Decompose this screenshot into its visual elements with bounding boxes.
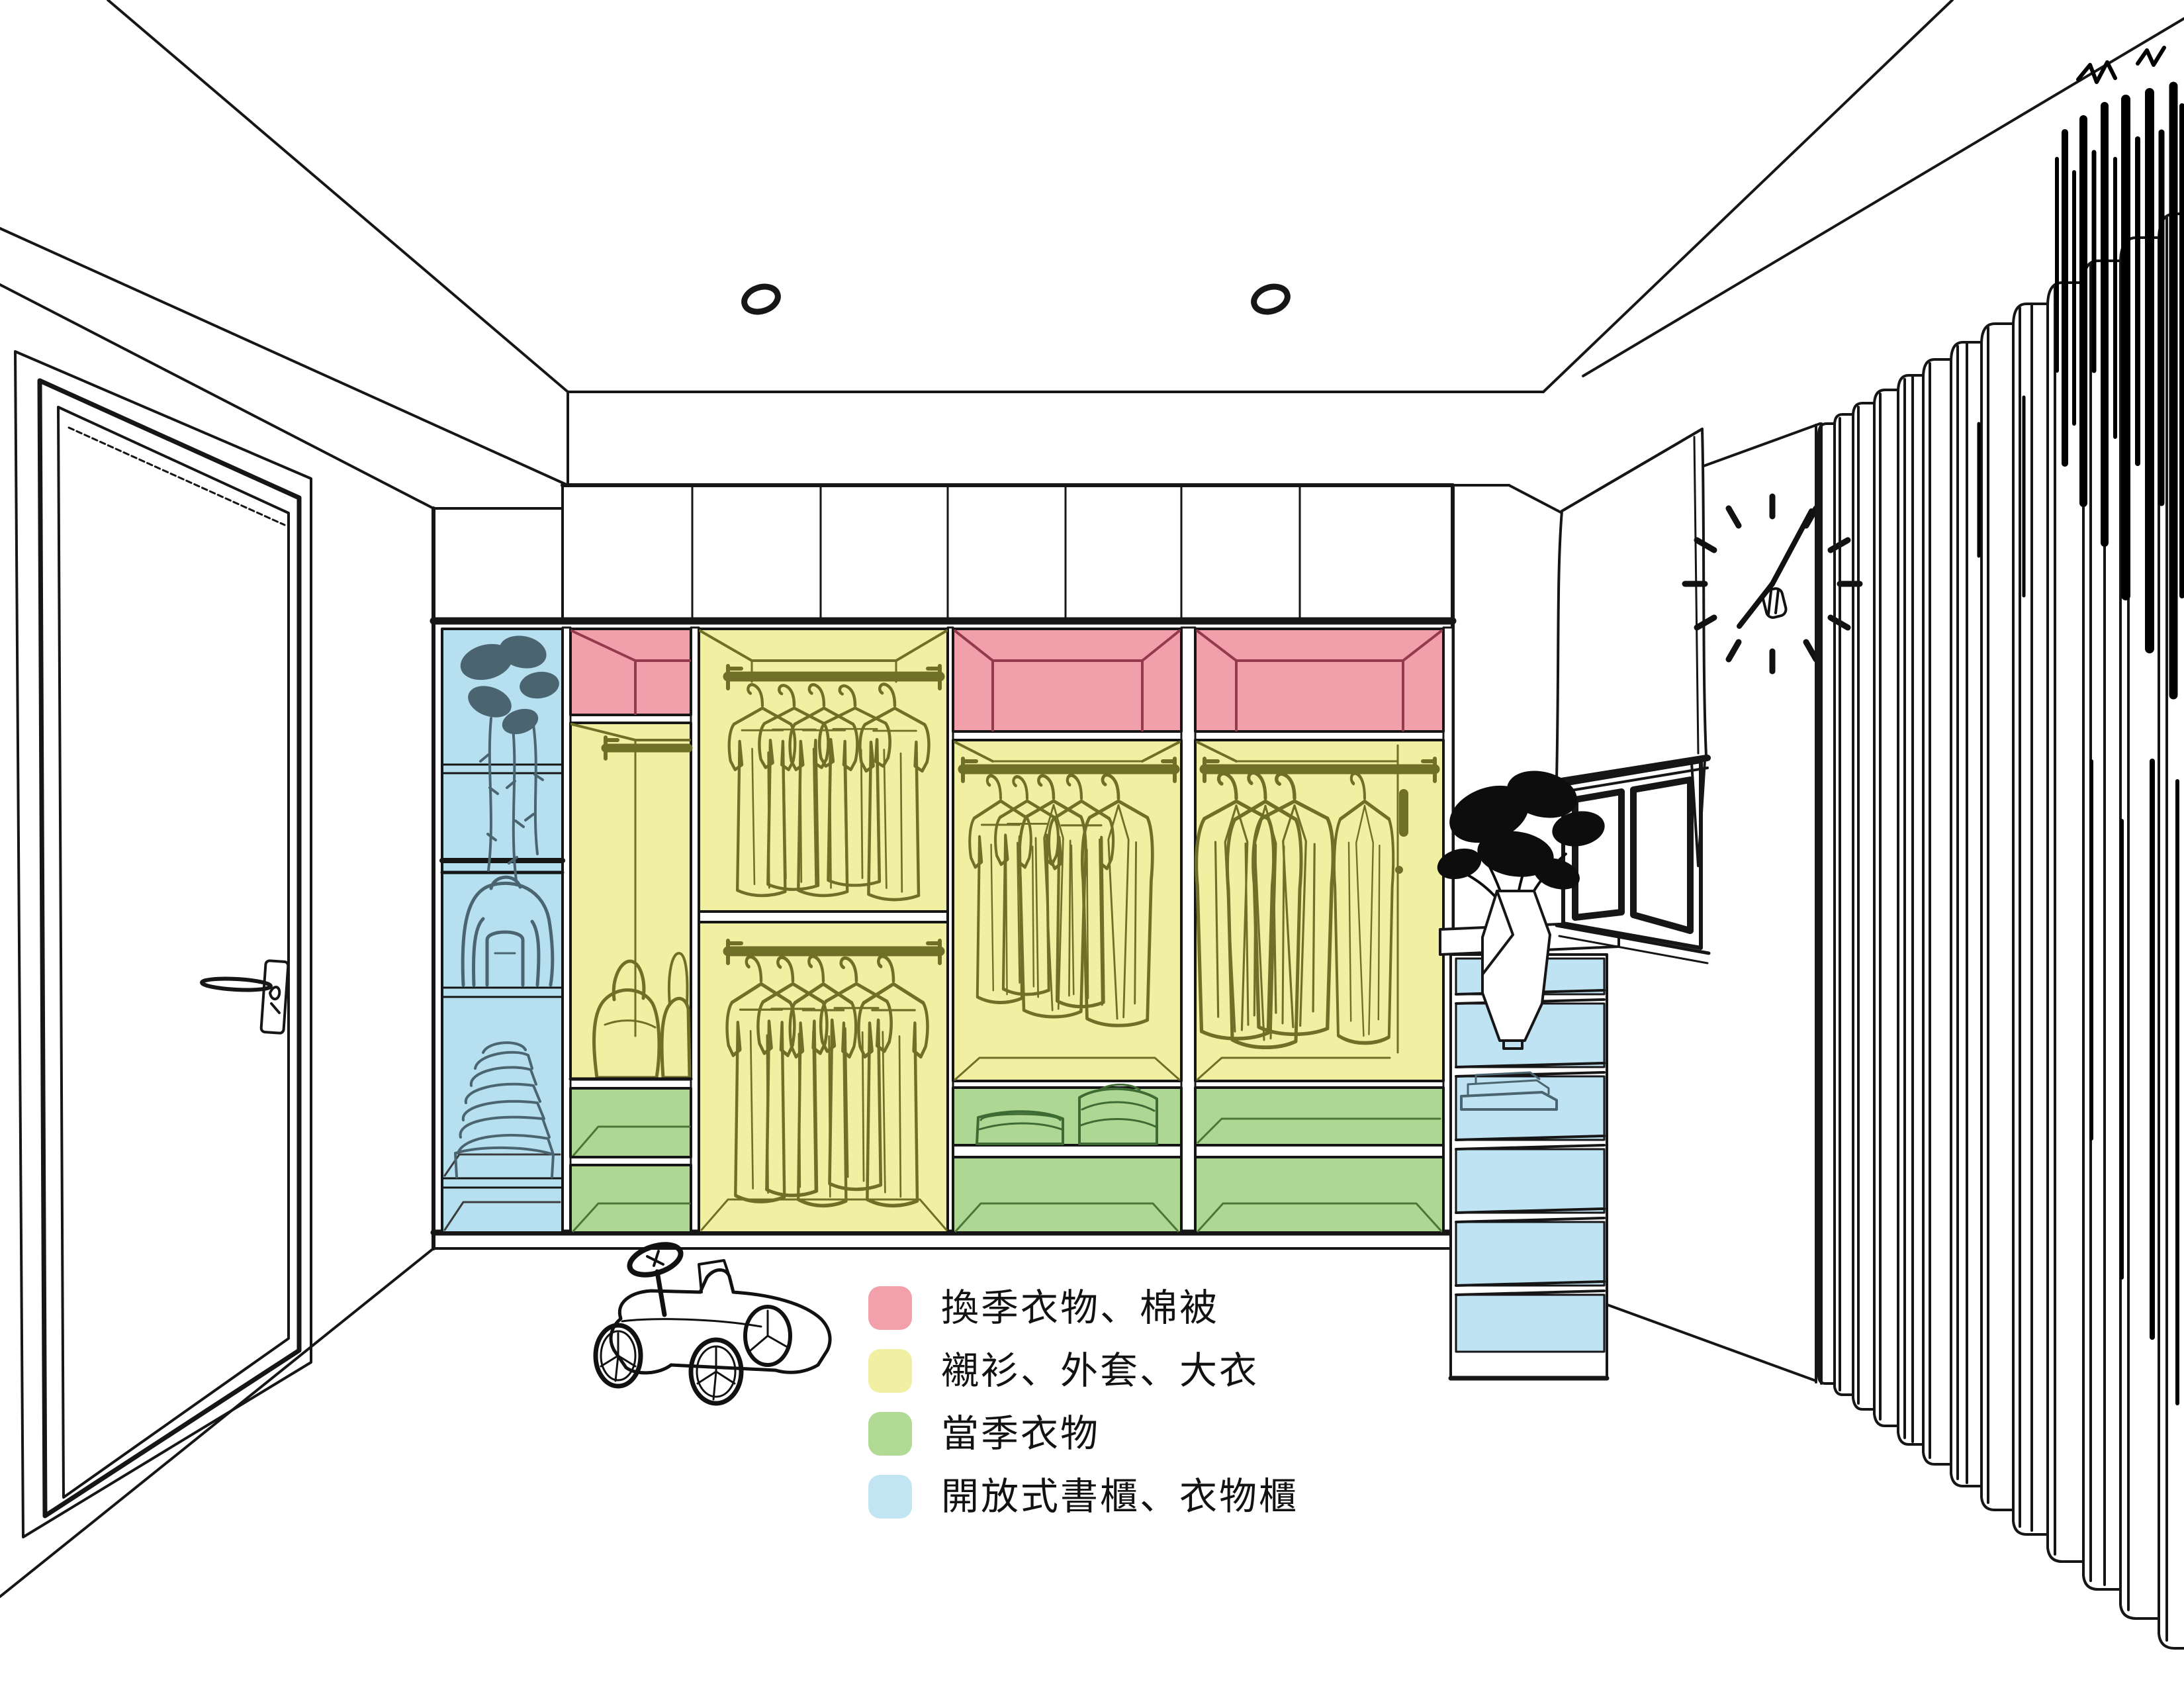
right-ceiling-corner-line [1543, 0, 1952, 392]
green-zone-cell [1195, 1157, 1443, 1233]
yellow-zone [953, 740, 1181, 1081]
wardrobe-top-cabinets [433, 485, 1453, 621]
legend-label: 當季衣物 [941, 1412, 1100, 1456]
mid-shelf [699, 912, 948, 922]
legend-label: 襯衫、外套、大衣 [941, 1349, 1259, 1393]
legend-swatch-blue [868, 1475, 912, 1519]
legend-swatch-green [868, 1412, 912, 1456]
left-wall-crown-line [0, 285, 433, 508]
left-ceiling-corner-line [108, 0, 568, 392]
ceiling-light-icon [1251, 283, 1291, 316]
top-cabinet-row [563, 485, 1453, 621]
legend-label: 開放式書櫃、衣物櫃 [941, 1475, 1298, 1519]
wardrobe [433, 485, 1453, 1248]
legend-item-shirts-coats: 襯衫、外套、大衣 [868, 1349, 1298, 1393]
curtain [1816, 48, 2184, 1648]
column-b [570, 629, 691, 1233]
legend-swatch-pink [868, 1286, 912, 1330]
legend-item-current-season: 當季衣物 [868, 1412, 1298, 1456]
car-rear-wheel-far [745, 1307, 790, 1365]
curtain-shading [1979, 48, 2182, 1403]
column-c-double-rod [699, 629, 948, 1233]
car-front-wheel-right [691, 1340, 741, 1403]
legend: 換季衣物、棉被 襯衫、外套、大衣 當季衣物 開放式書櫃、衣物櫃 [868, 1286, 1298, 1519]
clock-minute-hand [1772, 511, 1811, 584]
green-zone-cell [570, 1165, 691, 1233]
ceiling-light-icon [741, 283, 782, 316]
pink-zone [953, 629, 1181, 731]
shade-panel [1557, 429, 1706, 780]
green-shelf [953, 1145, 1181, 1157]
legend-item-open-shelving: 開放式書櫃、衣物櫃 [868, 1475, 1298, 1519]
green-zone-cell [953, 1157, 1181, 1233]
handle-plate [261, 961, 288, 1033]
left-floor-line [0, 1248, 433, 1597]
ceiling-lines [0, 0, 2184, 516]
door-handle [202, 961, 289, 1033]
column-e [1195, 629, 1443, 1233]
top-cabinet-cell [433, 508, 563, 621]
legend-label: 換季衣物、棉被 [941, 1286, 1219, 1330]
door [15, 352, 311, 1537]
door-slab [58, 407, 289, 1497]
door-frame-inner [40, 381, 299, 1516]
hinge-mark [1396, 867, 1402, 872]
pink-zone [570, 629, 691, 715]
room-illustration: 換季衣物、棉被 襯衫、外套、大衣 當季衣物 開放式書櫃、衣物櫃 [0, 0, 2184, 1688]
green-zone-cell [1195, 1088, 1443, 1145]
column-d [953, 629, 1181, 1233]
green-zone-cell [570, 1088, 691, 1157]
steering-column [657, 1272, 664, 1315]
green-shelf [1195, 1145, 1443, 1157]
toy-car [596, 1239, 830, 1403]
cabinet-door-handle [1400, 790, 1407, 835]
handle-lever [202, 977, 271, 991]
legend-swatch-yellow [868, 1349, 912, 1393]
car-front-wheel-left [596, 1325, 641, 1386]
clock-hub [1761, 587, 1787, 619]
pink-zone [1195, 629, 1443, 731]
handle-keyhole [270, 987, 279, 1013]
legend-item-seasonal-storage: 換季衣物、棉被 [868, 1286, 1298, 1330]
yellow-zone [570, 723, 691, 1079]
column-a-bookcase [442, 629, 563, 1233]
left-wall-top-line [0, 228, 568, 485]
